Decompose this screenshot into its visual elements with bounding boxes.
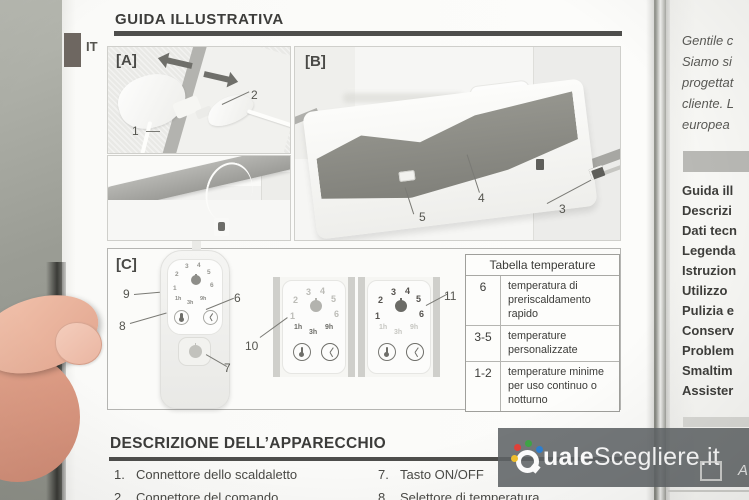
power-icon [310, 300, 322, 312]
on-off-button[interactable] [178, 337, 211, 366]
mattress [108, 200, 290, 240]
toc-item: Conserv [682, 321, 737, 341]
hour-mark-1h: 1h [294, 324, 302, 331]
toc-item: Pulizia e [682, 301, 737, 321]
list-item: 8. Selettore di temperatura [378, 490, 618, 500]
panel-c-label: [C] [116, 256, 137, 273]
manual-photo: IT GUIDA ILLUSTRATIVA [A] 1 2 [0, 0, 749, 500]
panel-b-label: [B] [305, 53, 326, 70]
temp-range: 6 [466, 276, 501, 325]
callout-10: 10 [245, 339, 258, 353]
intro-line: europea [682, 114, 734, 135]
thumb-nail [55, 322, 102, 365]
list-item: 1. Connettore dello scaldaletto [114, 467, 369, 482]
list-item: 2. Connettore del comando [114, 490, 369, 500]
hour-mark-3h: 3h [187, 300, 193, 306]
table-row: 1-2 temperature minime per uso continuo … [466, 362, 619, 411]
temp-description: temperatura di preriscaldamento rapido [501, 276, 619, 325]
power-icon [189, 345, 202, 358]
callout-11: 11 [444, 289, 456, 303]
digit-2: 2 [293, 295, 298, 305]
hour-mark-9h: 9h [410, 324, 418, 331]
show-through-square-icon [700, 461, 722, 481]
hour-mark-3h: 3h [394, 329, 402, 336]
table-row: 3-5 temperature personalizzate [466, 326, 619, 362]
timer-button [321, 343, 339, 361]
side-plug [536, 159, 544, 170]
intro-line: cliente. L [682, 93, 734, 114]
temperature-table-title: Tabella temperature [466, 255, 619, 276]
toc-item: Guida ill [682, 181, 737, 201]
digit-4: 4 [405, 286, 410, 296]
power-icon [191, 275, 201, 285]
intro-line: Siamo si [682, 51, 734, 72]
callout-line-9 [134, 292, 160, 295]
watermark-band: ualeScegliere.it A [498, 428, 749, 487]
item-number: 2. [114, 490, 136, 500]
callout-9: 9 [123, 287, 130, 301]
page-fold [646, 0, 670, 500]
power-icon [395, 300, 407, 312]
remote-control: 1 2 3 4 5 6 1h 3h 9h [160, 250, 230, 409]
hour-mark-3h: 3h [309, 329, 317, 336]
temp-range: 1-2 [466, 362, 501, 411]
toc-item: Smaltim [682, 361, 737, 381]
description-list-left: 1. Connettore dello scaldaletto 2. Conne… [114, 467, 369, 500]
language-tab-label: IT [86, 39, 98, 54]
panel-a-bed-corner-illustration [108, 156, 290, 240]
toc-item: Dati tecn [682, 221, 737, 241]
cable-connector-small [218, 222, 225, 231]
callout-6: 6 [234, 291, 241, 305]
callout-2: 2 [251, 88, 258, 102]
panel-a-plug-illustration: [A] 1 2 [108, 47, 290, 153]
intro-line: progettat [682, 72, 734, 93]
digit-6: 6 [334, 309, 339, 319]
temperature-table: Tabella temperature 6 temperatura di pre… [465, 254, 620, 412]
next-page-bottom-rule [668, 490, 749, 492]
hour-mark-1h: 1h [379, 324, 387, 331]
watermark-bold: uale [543, 443, 594, 471]
logo-dot-blue [536, 446, 543, 453]
intro-line: Gentile c [682, 30, 734, 51]
toc-item: Problem [682, 341, 737, 361]
display-face: 1 2 3 4 5 6 1h 3h 9h [282, 280, 346, 374]
hour-mark-9h: 9h [325, 324, 333, 331]
thermometer-button[interactable] [174, 310, 189, 325]
table-row: 6 temperatura di preriscaldamento rapido [466, 276, 619, 326]
toc-item: Assister [682, 381, 737, 401]
item-text: Connettore del comando [136, 490, 278, 500]
logo-dot-green [525, 440, 532, 447]
next-page-intro: Gentile c Siamo si progettat cliente. L … [682, 30, 734, 135]
digit-1: 1 [290, 311, 295, 321]
item-number: 1. [114, 467, 136, 482]
digit-2: 2 [378, 295, 383, 305]
callout-7: 7 [224, 361, 231, 375]
digit-1: 1 [173, 285, 177, 292]
toc-item: Istruzion [682, 261, 737, 281]
title-rule [114, 31, 622, 36]
digit-1: 1 [375, 311, 380, 321]
hour-mark-1h: 1h [175, 296, 181, 302]
logo-dot-red [514, 444, 521, 451]
section-title-description: DESCRIZIONE DELL’APPARECCHIO [110, 435, 386, 453]
display-closeup-left: 1 2 3 4 5 6 1h 3h 9h [273, 277, 355, 377]
item-number: 7. [378, 467, 400, 482]
item-number: 8. [378, 490, 400, 500]
logo-dot-yellow [511, 455, 518, 462]
digit-3: 3 [391, 287, 396, 297]
digit-3: 3 [185, 263, 189, 270]
panel-a-label: [A] [116, 52, 137, 69]
remote-display: 1 2 3 4 5 6 1h 3h 9h [167, 259, 223, 335]
next-page-heading-bar [683, 151, 749, 172]
callout-8: 8 [119, 319, 126, 333]
hour-mark-9h: 9h [200, 296, 206, 302]
watermark-text: ualeScegliere.it [543, 443, 720, 472]
display-face: 1 2 3 4 5 6 1h 3h 9h [367, 280, 431, 374]
next-page-light-bar [683, 417, 749, 427]
toc-item: Legenda [682, 241, 737, 261]
callout-4: 4 [478, 191, 485, 205]
temp-range: 3-5 [466, 326, 501, 361]
next-page-toc: Guida ill Descrizi Dati tecn Legenda Ist… [682, 181, 737, 401]
thermometer-button [378, 343, 396, 361]
digit-5: 5 [331, 294, 336, 304]
digit-6: 6 [210, 282, 214, 289]
callout-line-1 [146, 131, 160, 132]
temp-description: temperature personalizzate [501, 326, 619, 361]
thermometer-button [293, 343, 311, 361]
timer-button[interactable] [203, 310, 218, 325]
digit-4: 4 [320, 286, 325, 296]
toc-item: Descrizi [682, 201, 737, 221]
digit-5: 5 [207, 269, 211, 276]
digit-6: 6 [419, 309, 424, 319]
blanket-connector [398, 170, 415, 182]
qualescegliere-logo-icon [515, 444, 542, 471]
callout-3: 3 [559, 202, 566, 216]
item-text: Tasto ON/OFF [400, 467, 484, 482]
temp-description: temperature minime per uso continuo o no… [501, 362, 619, 411]
language-tab-marker [64, 33, 81, 67]
panel-c-controls-illustration: [C] 1 2 3 4 5 6 1h 3h 9h 9 [108, 249, 620, 409]
show-through-letter: A [738, 462, 748, 479]
digit-2: 2 [175, 271, 179, 278]
timer-button [406, 343, 424, 361]
display-closeup-right: 1 2 3 4 5 6 1h 3h 9h [358, 277, 440, 377]
page-title: GUIDA ILLUSTRATIVA [115, 11, 284, 28]
digit-3: 3 [306, 287, 311, 297]
callout-1: 1 [132, 124, 139, 138]
digit-4: 4 [197, 262, 201, 269]
toc-item: Utilizzo [682, 281, 737, 301]
digit-5: 5 [416, 294, 421, 304]
panel-b-bed-illustration: [B] 5 4 3 [295, 47, 620, 240]
item-text: Connettore dello scaldaletto [136, 467, 297, 482]
callout-5: 5 [419, 210, 426, 224]
item-text: Selettore di temperatura [400, 490, 539, 500]
